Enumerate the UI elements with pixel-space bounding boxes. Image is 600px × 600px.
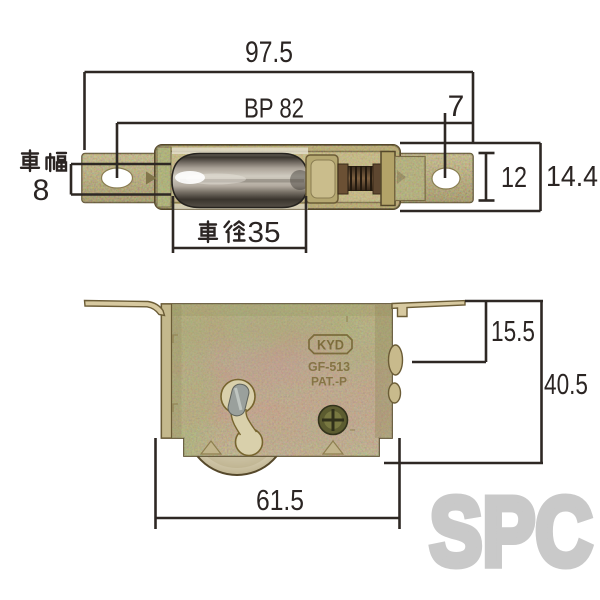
svg-text:12: 12	[501, 162, 527, 194]
svg-text:61.5: 61.5	[256, 485, 304, 517]
svg-text:35: 35	[248, 217, 281, 249]
svg-text:97.5: 97.5	[245, 36, 293, 69]
svg-text:GF-513: GF-513	[308, 359, 350, 374]
svg-text:KYD: KYD	[317, 338, 344, 353]
svg-text:BP 82: BP 82	[244, 93, 304, 124]
svg-text:40.5: 40.5	[544, 369, 588, 401]
svg-text:PAT.-P: PAT.-P	[311, 375, 347, 389]
svg-text:7: 7	[448, 90, 465, 123]
svg-text:SPC: SPC	[430, 477, 593, 586]
svg-text:8: 8	[33, 174, 50, 207]
svg-text:14.4: 14.4	[546, 161, 598, 193]
svg-text:15.5: 15.5	[491, 316, 535, 348]
